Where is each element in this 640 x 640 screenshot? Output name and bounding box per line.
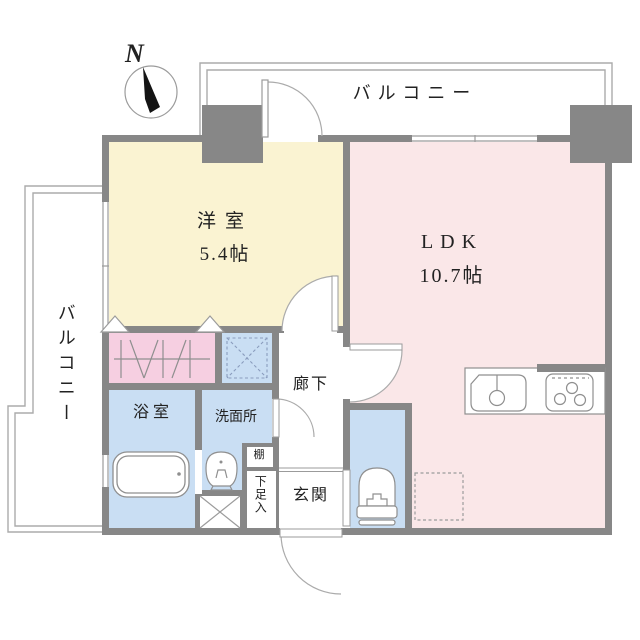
pillar-top-left	[202, 105, 263, 163]
washroom-label: 洗面所	[196, 410, 276, 425]
genkan-step-line	[279, 468, 343, 472]
shoe-cabinet-label: 下足入	[253, 475, 266, 514]
entrance-label: 玄関	[279, 487, 343, 505]
toilet-door	[343, 470, 350, 526]
entrance-door	[280, 529, 342, 594]
wall-closet-top-right	[337, 326, 350, 333]
bathtub	[113, 452, 189, 497]
balcony-top-label: バルコニー	[335, 84, 495, 104]
bathroom-label: 浴室	[110, 404, 196, 422]
wall-closet-laundry	[215, 333, 222, 383]
wall-laundry-hall	[272, 333, 279, 399]
wall-toilet-top	[343, 403, 412, 410]
western-balcony-door	[262, 80, 322, 137]
wall-bottom	[102, 528, 612, 535]
wall-right	[605, 135, 612, 535]
washbasin	[206, 452, 237, 490]
floor-plan-drawing	[0, 0, 640, 640]
kitchen-wall-stub	[537, 364, 605, 372]
shelf-label: 棚	[246, 449, 272, 461]
hallway-label: 廊下	[279, 376, 343, 394]
wall-toilet-right	[405, 403, 412, 535]
balcony-left-label: バルコニー	[55, 303, 75, 428]
wall-row-divider	[109, 383, 272, 390]
wall-hall-ldk-stub	[343, 333, 350, 347]
ldk-size: 10.7帖	[377, 265, 527, 287]
western-balcony-door-opening	[263, 135, 318, 142]
wall-western-ldk	[343, 142, 350, 333]
bathroom-door-opening	[195, 450, 202, 494]
kitchen-counter	[465, 364, 605, 414]
closet-area	[109, 333, 215, 383]
compass-north-label: N	[125, 40, 144, 69]
floor-plan: N バルコニー バルコニー 洋室 5.4帖 LDK 10.7帖 廊下 浴室 洗面…	[0, 0, 640, 640]
ldk-label: LDK	[377, 231, 527, 253]
western-room-size: 5.4帖	[155, 245, 295, 266]
washroom-door	[273, 399, 314, 437]
pillar-top-right	[570, 105, 632, 163]
compass	[125, 66, 177, 118]
toilet	[357, 468, 397, 525]
western-room-label: 洋室	[155, 212, 295, 233]
